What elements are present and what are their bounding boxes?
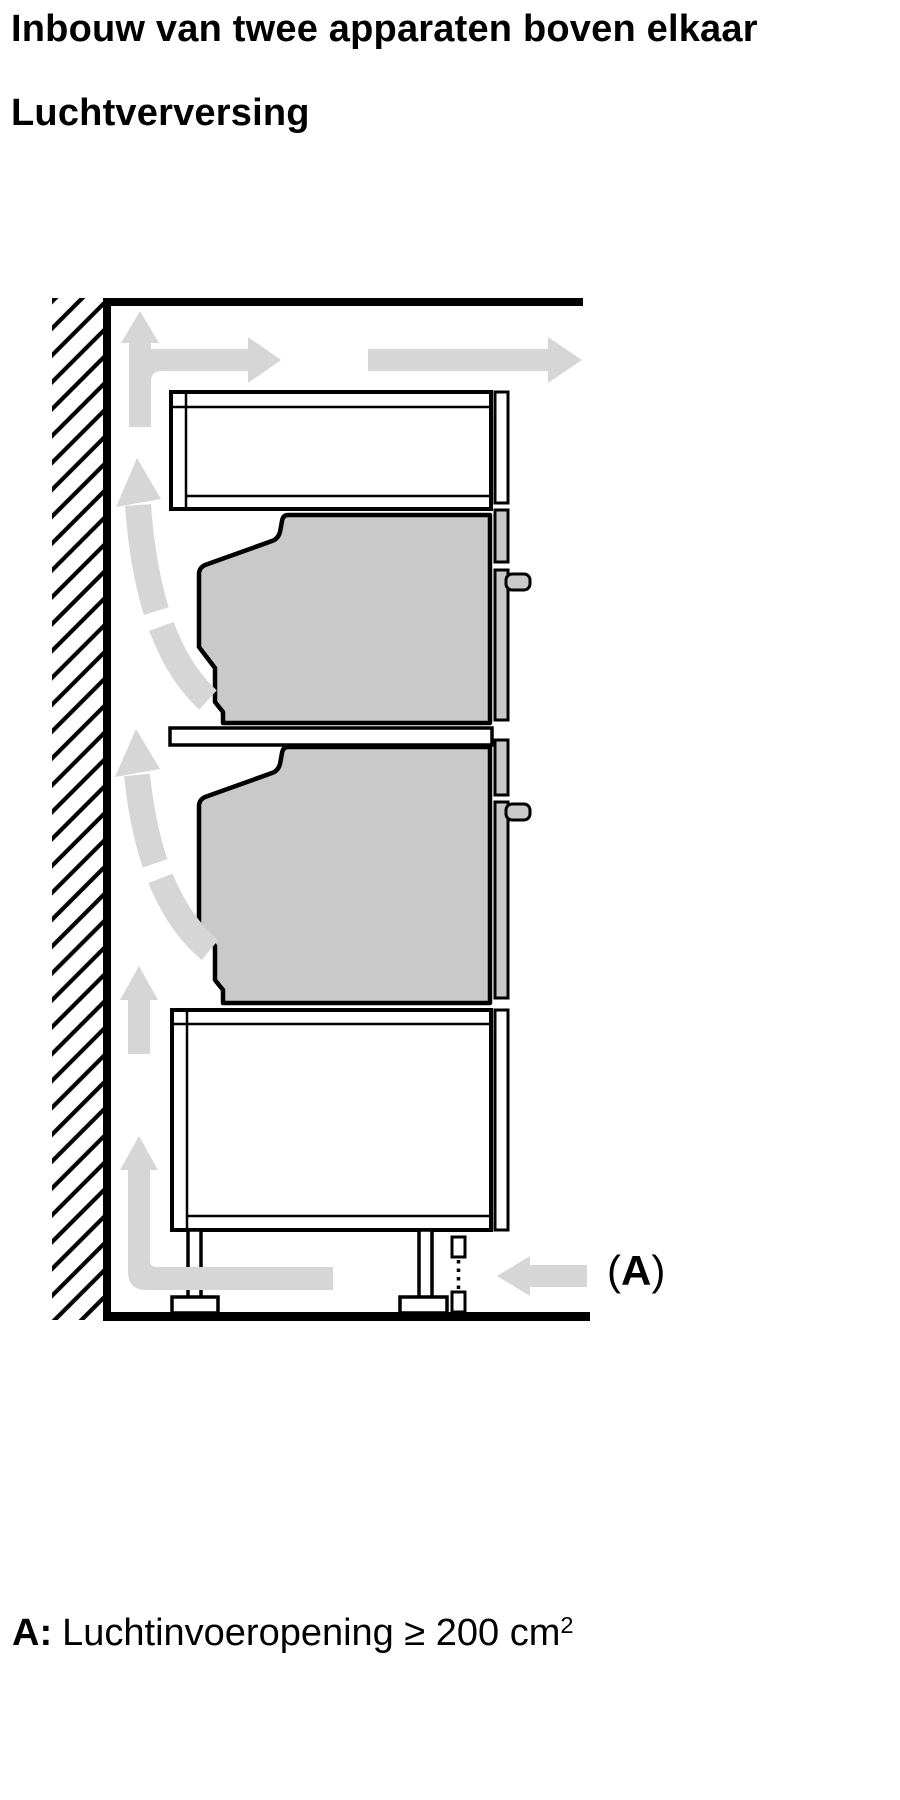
upper-front-strip bbox=[495, 392, 508, 503]
callout-open-paren: ( bbox=[607, 1247, 621, 1294]
airflow-curve-lower bbox=[115, 729, 210, 950]
lower-door-front bbox=[495, 802, 508, 998]
callout-letter: A bbox=[621, 1247, 651, 1294]
top-panel-line bbox=[103, 298, 583, 306]
airflow-up-arrow-mid bbox=[120, 966, 158, 1054]
upper-control-panel bbox=[495, 510, 508, 562]
appliance-lower bbox=[199, 747, 490, 1003]
lower-front-strip bbox=[495, 1010, 508, 1230]
upper-compartment bbox=[171, 392, 491, 509]
right-leg bbox=[419, 1230, 432, 1298]
callout-a-label: (A) bbox=[607, 1247, 665, 1295]
installation-diagram bbox=[0, 0, 900, 1800]
left-foot bbox=[172, 1297, 218, 1313]
lower-appliance-front bbox=[495, 740, 530, 998]
airflow-right-arrow bbox=[368, 337, 582, 383]
caption-definition: Luchtinvoeropening ≥ 200 cm bbox=[62, 1612, 560, 1654]
air-inlet-arrow bbox=[497, 1256, 587, 1296]
right-foot bbox=[400, 1297, 447, 1313]
legend-caption: A:Luchtinvoeropening ≥ 200 cm2 bbox=[12, 1612, 574, 1655]
caption-term: A: bbox=[12, 1612, 52, 1654]
lower-door-handle bbox=[506, 804, 530, 820]
wall-line bbox=[103, 298, 111, 1313]
upper-appliance-front bbox=[495, 510, 530, 720]
lower-compartment bbox=[172, 1010, 491, 1230]
plinth-marker bbox=[452, 1237, 465, 1312]
lower-control-panel bbox=[495, 740, 508, 795]
upper-door-front bbox=[495, 570, 508, 720]
upper-door-handle bbox=[506, 574, 530, 590]
middle-shelf bbox=[170, 728, 492, 745]
wall bbox=[52, 298, 111, 1320]
caption-superscript: 2 bbox=[560, 1612, 573, 1638]
callout-close-paren: ) bbox=[651, 1247, 665, 1294]
wall-hatching bbox=[52, 298, 104, 1320]
appliance-upper bbox=[199, 515, 490, 723]
